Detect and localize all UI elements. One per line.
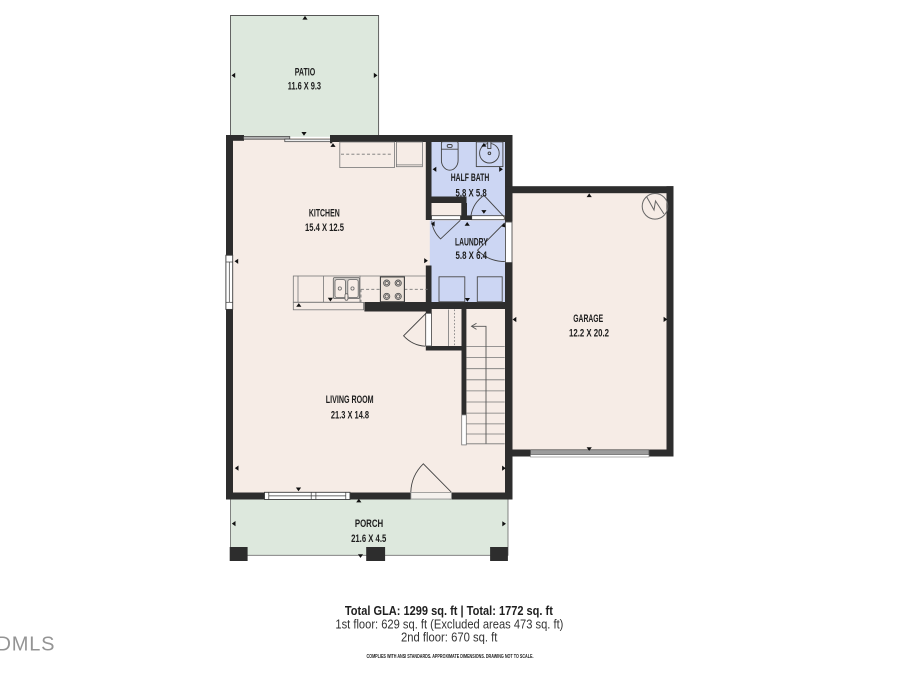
- svg-text:HALF BATH: HALF BATH: [451, 172, 490, 184]
- svg-text:COMPLIES WITH ANSI STANDARDS.: COMPLIES WITH ANSI STANDARDS. APPROXIMAT…: [367, 654, 534, 660]
- svg-text:LAUNDRY: LAUNDRY: [455, 237, 488, 249]
- svg-text:5.8 X 6.4: 5.8 X 6.4: [456, 250, 488, 262]
- svg-text:15.4 X 12.5: 15.4 X 12.5: [305, 222, 344, 234]
- svg-text:GARAGE: GARAGE: [573, 313, 603, 325]
- svg-text:DMLS: DMLS: [0, 634, 55, 656]
- svg-text:LIVING ROOM: LIVING ROOM: [326, 394, 374, 406]
- svg-text:12.2 X 20.2: 12.2 X 20.2: [569, 327, 609, 339]
- svg-text:KITCHEN: KITCHEN: [309, 208, 340, 220]
- svg-text:21.3 X 14.8: 21.3 X 14.8: [331, 410, 369, 422]
- svg-text:5.8 X 5.8: 5.8 X 5.8: [456, 188, 487, 200]
- svg-text:21.6 X 4.5: 21.6 X 4.5: [351, 533, 386, 545]
- svg-text:2nd floor: 670 sq. ft: 2nd floor: 670 sq. ft: [401, 629, 498, 644]
- svg-text:11.6 X 9.3: 11.6 X 9.3: [288, 80, 321, 92]
- svg-text:PATIO: PATIO: [295, 66, 316, 78]
- svg-text:PORCH: PORCH: [355, 518, 383, 530]
